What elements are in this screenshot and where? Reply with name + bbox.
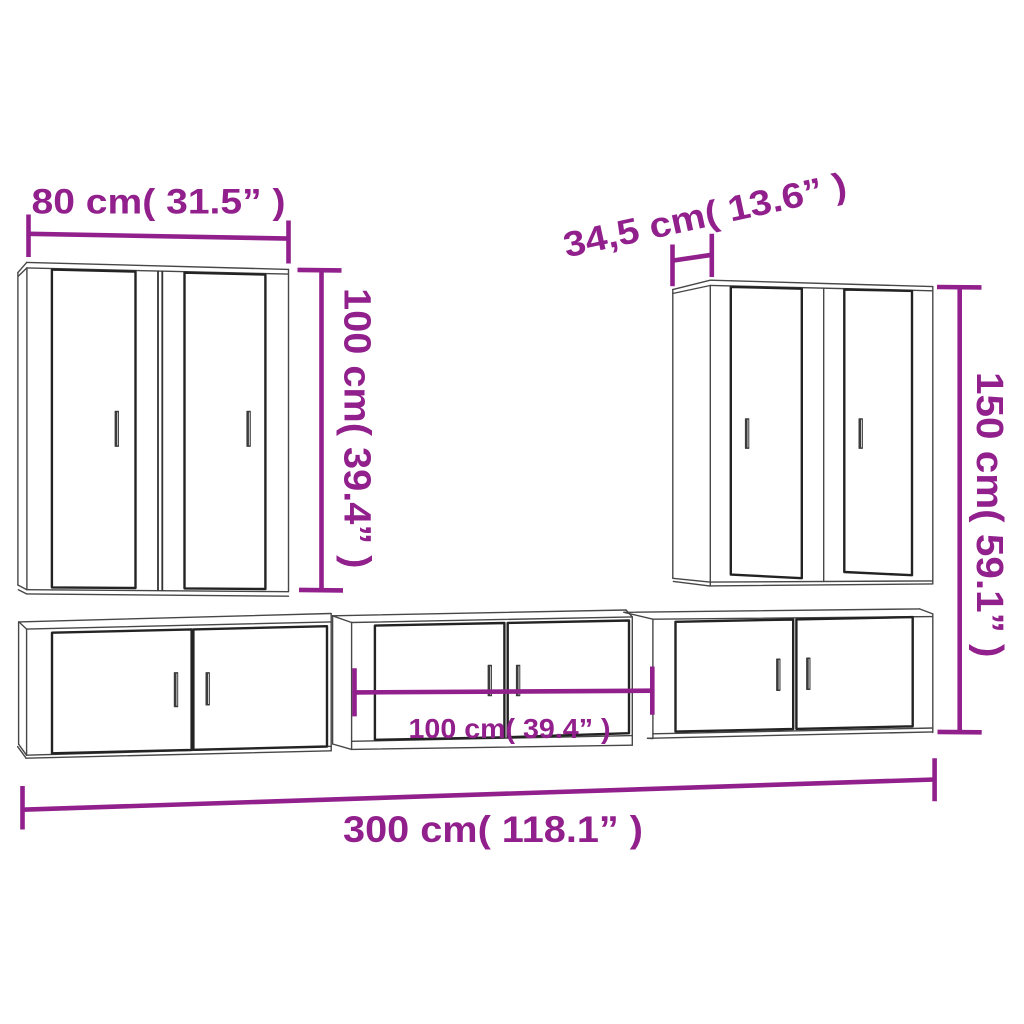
svg-text:100 cm( 39.4” ): 100 cm( 39.4” ): [409, 713, 611, 744]
svg-text:100 cm( 39.4” ): 100 cm( 39.4” ): [336, 288, 378, 569]
svg-text:150 cm( 59.1” ): 150 cm( 59.1” ): [968, 372, 1010, 658]
svg-text:300 cm( 118.1” ): 300 cm( 118.1” ): [343, 809, 643, 850]
svg-text:80 cm( 31.5” ): 80 cm( 31.5” ): [32, 182, 286, 221]
